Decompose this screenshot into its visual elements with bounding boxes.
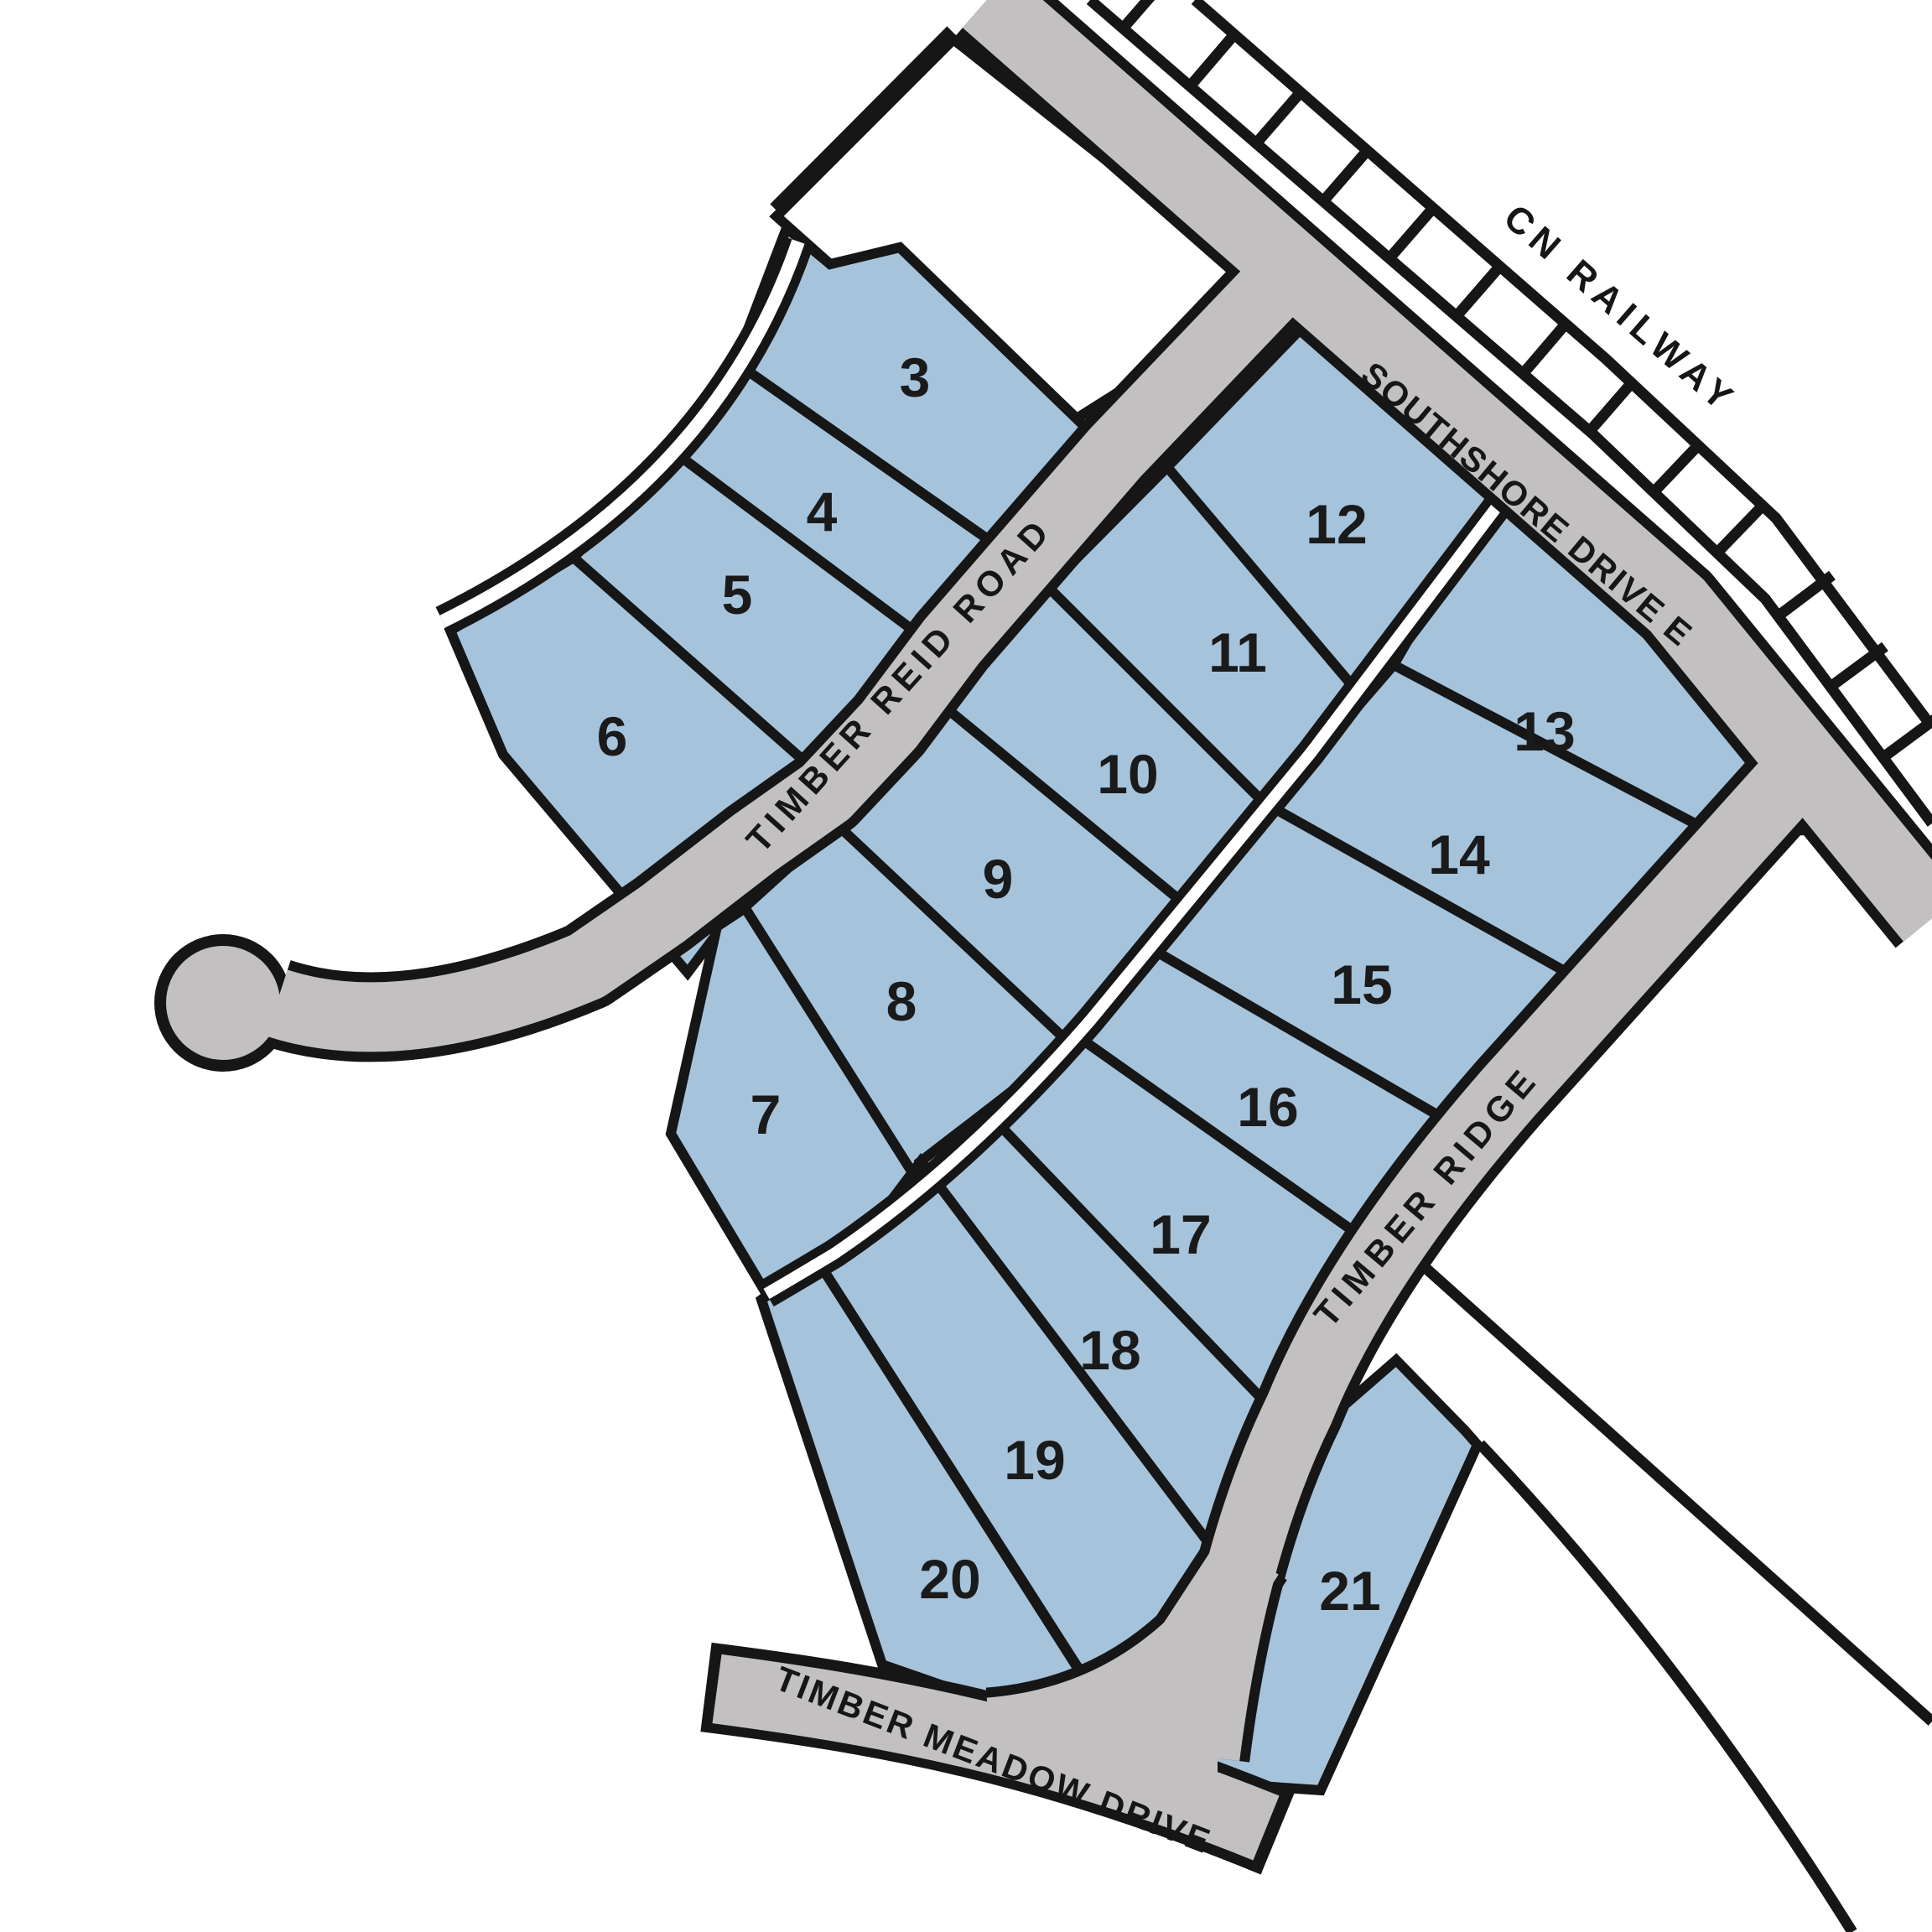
- svg-text:11: 11: [1208, 621, 1267, 683]
- svg-text:12: 12: [1306, 493, 1367, 555]
- svg-text:16: 16: [1237, 1076, 1298, 1138]
- svg-text:5: 5: [722, 563, 753, 626]
- svg-text:13: 13: [1514, 700, 1575, 762]
- svg-text:10: 10: [1097, 743, 1158, 805]
- svg-text:9: 9: [983, 848, 1014, 910]
- svg-text:3: 3: [900, 346, 931, 408]
- svg-text:21: 21: [1319, 1560, 1380, 1622]
- svg-text:14: 14: [1428, 823, 1490, 885]
- svg-text:19: 19: [1004, 1429, 1065, 1491]
- svg-text:20: 20: [919, 1548, 980, 1610]
- svg-text:17: 17: [1150, 1203, 1211, 1265]
- svg-text:4: 4: [807, 480, 838, 543]
- svg-text:15: 15: [1331, 953, 1392, 1015]
- svg-text:18: 18: [1079, 1319, 1140, 1381]
- svg-text:6: 6: [597, 705, 628, 767]
- svg-text:7: 7: [750, 1083, 782, 1145]
- svg-text:8: 8: [886, 970, 917, 1032]
